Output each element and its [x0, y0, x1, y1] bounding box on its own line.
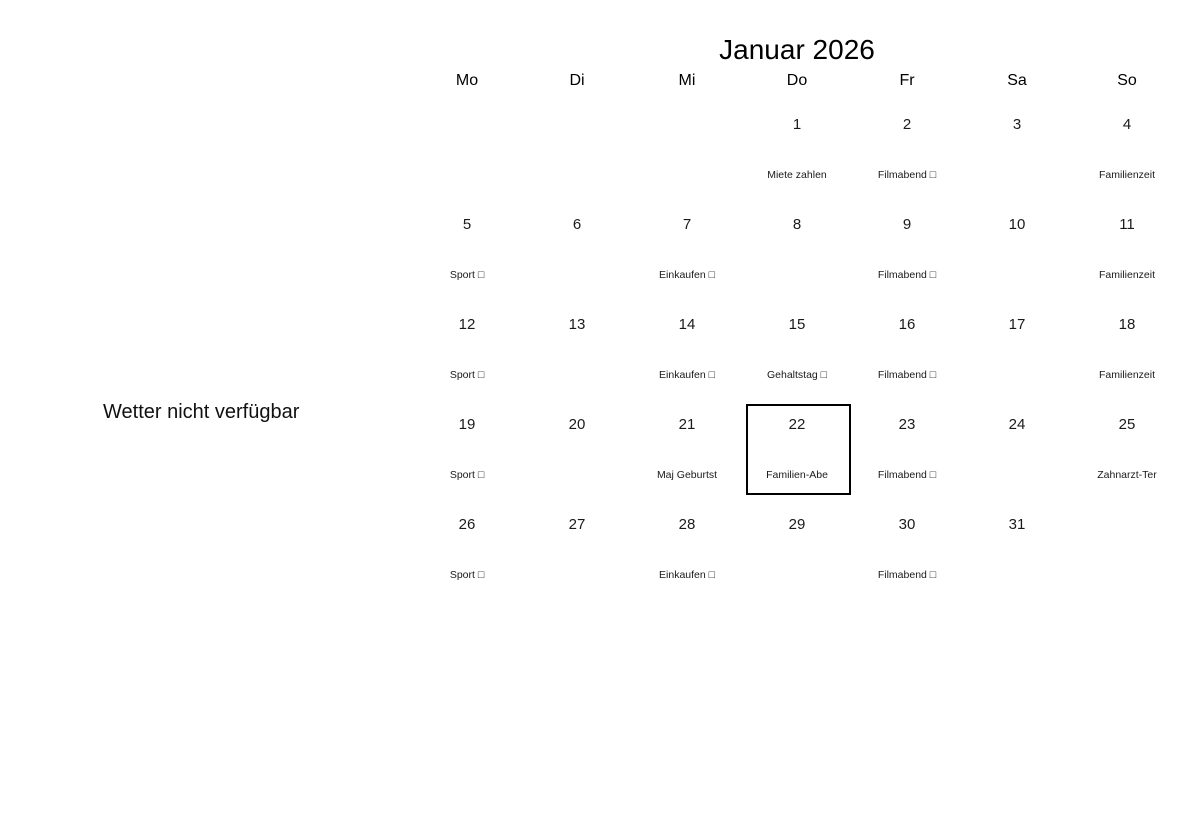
- day-number: 29: [742, 517, 852, 533]
- day-number: 30: [852, 517, 962, 533]
- event-label: Familienzeit: [1072, 370, 1182, 381]
- day-cell: [1072, 500, 1182, 600]
- day-cell-29[interactable]: 29: [742, 500, 852, 600]
- weekday-header-fr: Fr: [852, 70, 962, 92]
- day-number: 25: [1072, 417, 1182, 433]
- event-label: Filmabend □: [852, 170, 962, 181]
- day-cell-17[interactable]: 17: [962, 300, 1072, 400]
- day-cell-27[interactable]: 27: [522, 500, 632, 600]
- event-label: Sport □: [412, 470, 522, 481]
- day-number: 15: [742, 317, 852, 333]
- day-number: 28: [632, 517, 742, 533]
- day-cell-1[interactable]: 1 Miete zahlen: [742, 100, 852, 200]
- day-cell-7[interactable]: 7 Einkaufen □: [632, 200, 742, 300]
- weather-unavailable-text: Wetter nicht verfügbar: [103, 400, 299, 424]
- day-cell-4[interactable]: 4 Familienzeit: [1072, 100, 1182, 200]
- event-label: Maj Geburtst: [632, 470, 742, 481]
- weekday-header-mi: Mi: [632, 70, 742, 92]
- day-number: 6: [522, 217, 632, 233]
- day-number: 17: [962, 317, 1072, 333]
- day-cell-22-selected[interactable]: 22 Familien-Abe: [742, 400, 852, 500]
- weekday-header-row: Mo Di Mi Do Fr Sa So: [412, 70, 1182, 92]
- day-cell-24[interactable]: 24: [962, 400, 1072, 500]
- day-number: 4: [1072, 117, 1182, 133]
- day-cell-16[interactable]: 16 Filmabend □: [852, 300, 962, 400]
- weekday-header-sa: Sa: [962, 70, 1072, 92]
- weekday-header-so: So: [1072, 70, 1182, 92]
- day-cell-12[interactable]: 12 Sport □: [412, 300, 522, 400]
- day-number: 11: [1072, 217, 1182, 233]
- day-number: 26: [412, 517, 522, 533]
- day-cell-21[interactable]: 21 Maj Geburtst: [632, 400, 742, 500]
- day-number: 9: [852, 217, 962, 233]
- day-cell-19[interactable]: 19 Sport □: [412, 400, 522, 500]
- day-number: 21: [632, 417, 742, 433]
- day-number: 16: [852, 317, 962, 333]
- day-cell-8[interactable]: 8: [742, 200, 852, 300]
- event-label: Filmabend □: [852, 370, 962, 381]
- day-cell: [632, 100, 742, 200]
- day-number: 14: [632, 317, 742, 333]
- event-label: Einkaufen □: [632, 270, 742, 281]
- weekday-header-di: Di: [522, 70, 632, 92]
- event-label: Einkaufen □: [632, 370, 742, 381]
- calendar-grid: 1 Miete zahlen 2 Filmabend □ 3 4 Familie…: [412, 100, 1182, 600]
- day-cell-23[interactable]: 23 Filmabend □: [852, 400, 962, 500]
- day-number: 18: [1072, 317, 1182, 333]
- day-number: 24: [962, 417, 1072, 433]
- day-number: 1: [742, 117, 852, 133]
- day-cell-14[interactable]: 14 Einkaufen □: [632, 300, 742, 400]
- day-cell-26[interactable]: 26 Sport □: [412, 500, 522, 600]
- day-cell-31[interactable]: 31: [962, 500, 1072, 600]
- event-label: Familienzeit: [1072, 270, 1182, 281]
- day-cell: [412, 100, 522, 200]
- calendar-month-title: Januar 2026: [412, 30, 1182, 70]
- event-label: Miete zahlen: [742, 170, 852, 181]
- day-number: 7: [632, 217, 742, 233]
- day-number: 31: [962, 517, 1072, 533]
- day-cell-18[interactable]: 18 Familienzeit: [1072, 300, 1182, 400]
- event-label: Einkaufen □: [632, 570, 742, 581]
- event-label: Filmabend □: [852, 270, 962, 281]
- day-cell-10[interactable]: 10: [962, 200, 1072, 300]
- weekday-header-mo: Mo: [412, 70, 522, 92]
- event-label: Gehaltstag □: [742, 370, 852, 381]
- day-cell-6[interactable]: 6: [522, 200, 632, 300]
- day-cell-28[interactable]: 28 Einkaufen □: [632, 500, 742, 600]
- weekday-header-do: Do: [742, 70, 852, 92]
- event-label: Sport □: [412, 370, 522, 381]
- day-cell-13[interactable]: 13: [522, 300, 632, 400]
- day-number: 27: [522, 517, 632, 533]
- event-label: Filmabend □: [852, 570, 962, 581]
- day-number: 23: [852, 417, 962, 433]
- day-cell-3[interactable]: 3: [962, 100, 1072, 200]
- event-label: Sport □: [412, 270, 522, 281]
- day-number: 20: [522, 417, 632, 433]
- day-cell-15[interactable]: 15 Gehaltstag □: [742, 300, 852, 400]
- day-number: 3: [962, 117, 1072, 133]
- day-number: 19: [412, 417, 522, 433]
- day-cell-2[interactable]: 2 Filmabend □: [852, 100, 962, 200]
- day-number: 8: [742, 217, 852, 233]
- day-cell-11[interactable]: 11 Familienzeit: [1072, 200, 1182, 300]
- day-number: 12: [412, 317, 522, 333]
- event-label: Sport □: [412, 570, 522, 581]
- day-cell-30[interactable]: 30 Filmabend □: [852, 500, 962, 600]
- day-cell: [522, 100, 632, 200]
- day-number: 2: [852, 117, 962, 133]
- day-cell-20[interactable]: 20: [522, 400, 632, 500]
- day-number: 13: [522, 317, 632, 333]
- day-cell-5[interactable]: 5 Sport □: [412, 200, 522, 300]
- event-label: Filmabend □: [852, 470, 962, 481]
- day-cell-25[interactable]: 25 Zahnarzt-Ter: [1072, 400, 1182, 500]
- calendar: Januar 2026 Mo Di Mi Do Fr Sa So: [412, 30, 1182, 600]
- event-label: Familien-Abe: [742, 470, 852, 481]
- day-number: 5: [412, 217, 522, 233]
- day-number: 10: [962, 217, 1072, 233]
- day-cell-9[interactable]: 9 Filmabend □: [852, 200, 962, 300]
- event-label: Familienzeit: [1072, 170, 1182, 181]
- day-number: 22: [742, 417, 852, 433]
- event-label: Zahnarzt-Ter: [1072, 470, 1182, 481]
- page: Wetter nicht verfügbar Januar 2026 Mo Di…: [0, 0, 1200, 825]
